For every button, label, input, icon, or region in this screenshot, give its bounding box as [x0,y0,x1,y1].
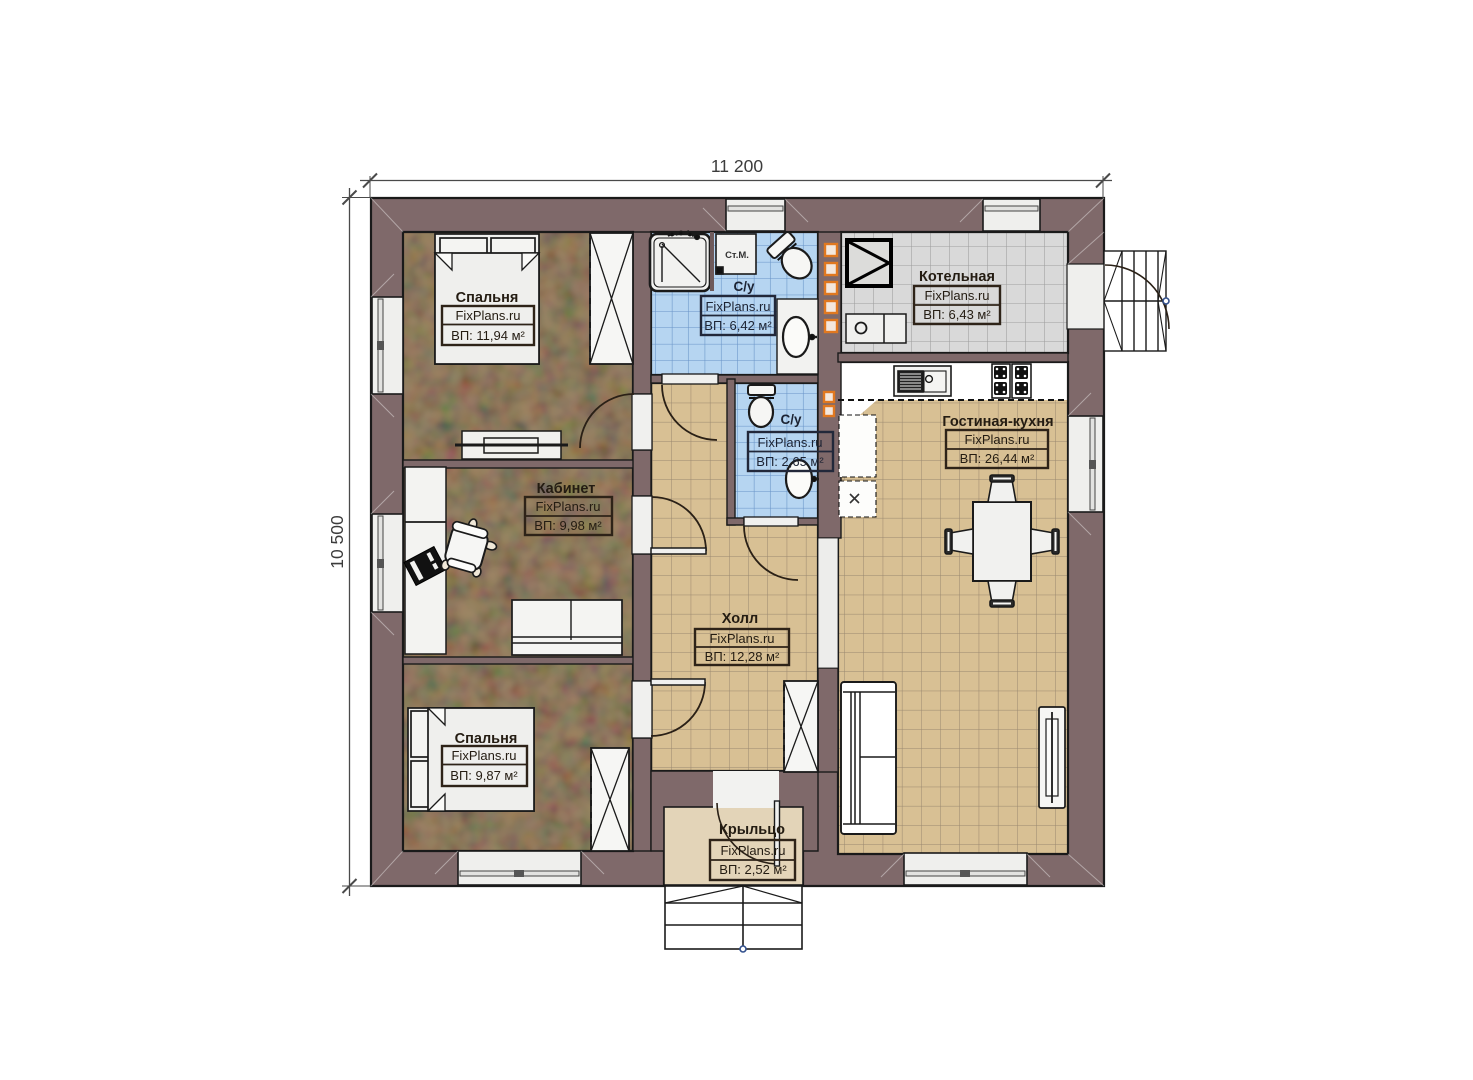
svg-text:ВП: 11,94 м²: ВП: 11,94 м² [451,328,525,343]
svg-text:Спальня: Спальня [456,290,519,306]
svg-text:ВП: 6,43 м²: ВП: 6,43 м² [923,307,991,322]
svg-text:ВП: 26,44 м²: ВП: 26,44 м² [960,451,1035,466]
svg-text:FixPlans.ru: FixPlans.ru [451,748,516,763]
svg-text:ВП: 2,65 м²: ВП: 2,65 м² [756,454,824,469]
svg-text:FixPlans.ru: FixPlans.ru [455,308,520,323]
svg-text:11 200: 11 200 [711,156,763,176]
svg-text:FixPlans.ru: FixPlans.ru [757,435,822,450]
svg-text:10 500: 10 500 [327,515,347,569]
svg-text:ВП: 9,87 м²: ВП: 9,87 м² [450,768,518,783]
svg-text:FixPlans.ru: FixPlans.ru [720,843,785,858]
svg-text:FixPlans.ru: FixPlans.ru [535,499,600,514]
svg-text:ВП: 9,98 м²: ВП: 9,98 м² [534,518,602,533]
svg-text:Спальня: Спальня [455,731,518,747]
svg-text:Холл: Холл [722,611,758,627]
svg-text:ВП: 6,42 м²: ВП: 6,42 м² [704,318,772,333]
svg-text:FixPlans.ru: FixPlans.ru [924,288,989,303]
svg-text:FixPlans.ru: FixPlans.ru [709,631,774,646]
svg-text:Гостиная-кухня: Гостиная-кухня [942,414,1053,430]
svg-text:Ст.М.: Ст.М. [725,250,749,261]
svg-text:FixPlans.ru: FixPlans.ru [964,432,1029,447]
svg-text:FixPlans.ru: FixPlans.ru [705,299,770,314]
svg-text:Кабинет: Кабинет [537,481,596,497]
svg-text:Крыльцо: Крыльцо [719,822,785,838]
svg-text:С/у: С/у [780,412,802,427]
svg-text:С/у: С/у [733,279,755,294]
svg-text:ВП: 12,28 м²: ВП: 12,28 м² [705,649,780,664]
svg-text:ВП: 2,52 м²: ВП: 2,52 м² [719,862,787,877]
svg-text:Котельная: Котельная [919,269,995,285]
